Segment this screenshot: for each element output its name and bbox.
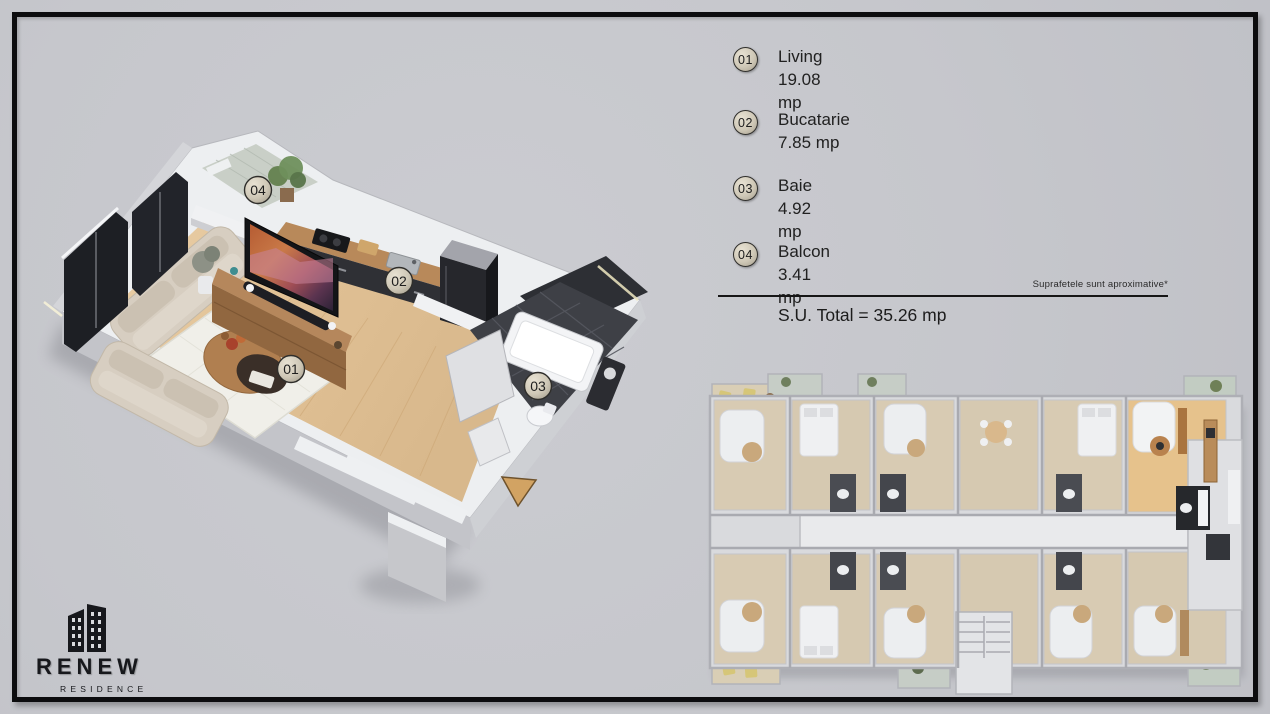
- svg-text:03: 03: [530, 378, 546, 394]
- total-area: S.U. Total = 35.26 mp: [778, 305, 946, 326]
- highlighted-unit-bathroom: [1176, 486, 1210, 530]
- room-label: Baie: [778, 174, 812, 197]
- marker-03: 03: [525, 373, 552, 400]
- marker-02: 02: [386, 268, 413, 295]
- room-area: 3.41 mp: [778, 263, 830, 309]
- teal-cup: [230, 267, 238, 275]
- legend: 01 Living 19.08 mp 02 Bucatarie 7.85 mp …: [733, 45, 1183, 345]
- legend-text-bucatarie: Bucatarie 7.85 mp: [778, 108, 850, 154]
- room-label: Living: [778, 45, 822, 68]
- corridor: [800, 515, 1188, 548]
- lobby-window: [1228, 470, 1240, 524]
- room-area: 7.85 mp: [778, 131, 850, 154]
- page: 01 02 03 04: [0, 0, 1270, 714]
- buildings-icon: [66, 602, 116, 654]
- room-label: Balcon: [778, 240, 830, 263]
- legend-badge-04: 04: [733, 242, 758, 267]
- svg-text:02: 02: [391, 273, 407, 289]
- legend-text-living: Living 19.08 mp: [778, 45, 822, 114]
- logo-name: RENEW: [36, 654, 143, 680]
- legend-text-baie: Baie 4.92 mp: [778, 174, 812, 243]
- legend-divider: [718, 295, 1168, 297]
- legend-text-balcon: Balcon 3.41 mp: [778, 240, 830, 309]
- room-area: 4.92 mp: [778, 197, 812, 243]
- legend-badge-03: 03: [733, 176, 758, 201]
- marker-01: 01: [278, 356, 305, 383]
- console-vase: [334, 341, 342, 349]
- apartment-3d-plan: 01 02 03 04: [44, 131, 648, 603]
- building-floor-plan: [710, 374, 1244, 694]
- svg-text:04: 04: [250, 182, 266, 198]
- marker-04: 04: [245, 177, 272, 204]
- legend-badge-01: 01: [733, 47, 758, 72]
- legend-badge-02: 02: [733, 110, 758, 135]
- staircase: [956, 612, 1012, 694]
- room-label: Bucatarie: [778, 108, 850, 131]
- svg-text:01: 01: [283, 361, 299, 377]
- elevator: [1206, 534, 1230, 560]
- approximation-note: Suprafetele sunt aproximative*: [1033, 279, 1168, 290]
- logo-subtitle: RESIDENCE: [60, 684, 147, 694]
